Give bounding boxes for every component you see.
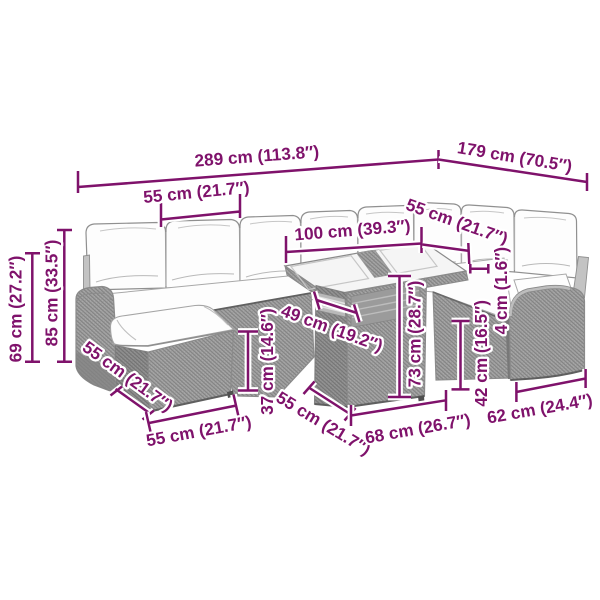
svg-text:37 cm (14.6″): 37 cm (14.6″): [257, 308, 277, 415]
svg-text:42 cm (16.5″): 42 cm (16.5″): [471, 300, 491, 407]
svg-text:69 cm (27.2″): 69 cm (27.2″): [6, 256, 26, 363]
svg-text:73 cm (28.7″): 73 cm (28.7″): [404, 281, 424, 388]
svg-text:85 cm (33.5″): 85 cm (33.5″): [41, 240, 61, 347]
svg-text:4 cm (1.6″): 4 cm (1.6″): [491, 247, 511, 335]
